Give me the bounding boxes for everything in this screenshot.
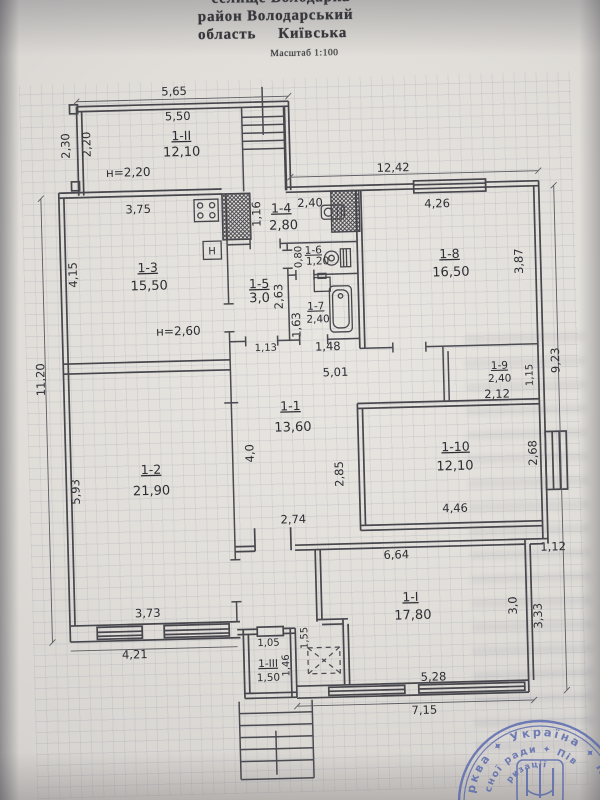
- room-area-1-2: 21,90: [133, 483, 171, 499]
- room-area-1-4: 2,80: [269, 218, 298, 234]
- room-area-1-8: 16,50: [432, 265, 470, 281]
- dim-1-2-door: 2,74: [280, 512, 306, 527]
- room-area-1-III: 1,50: [257, 672, 281, 685]
- dim-1-4-top: 2,40: [297, 195, 323, 210]
- dim-alcove-height: 1,55: [299, 627, 311, 650]
- interior-walls: [219, 186, 545, 622]
- room-label-1-3: 1-3: [137, 260, 158, 276]
- room-label-1-1: 1-1: [280, 398, 301, 414]
- dim-1-III-right: 1,46: [281, 654, 293, 677]
- room-area-1-9: 2,40: [488, 372, 512, 385]
- dim-1-10-window: 2,68: [525, 440, 540, 466]
- dim-1-1-width: 5,01: [323, 365, 349, 380]
- dim-step-right: 1,12: [540, 539, 566, 554]
- dim-1-I-right-outer: 3,33: [531, 603, 546, 629]
- dim-1-1-height: 4,0: [242, 444, 256, 463]
- radiator-letter: Н: [208, 246, 216, 257]
- dim-1-7-width: 1,48: [315, 339, 341, 354]
- dim-left-height: 11,20: [33, 363, 48, 396]
- dim-1-3-height: 4,15: [66, 262, 81, 288]
- dim-1-10-width: 4,46: [442, 501, 468, 516]
- room-label-1-I: 1-I: [402, 589, 419, 604]
- stove-icon: [194, 199, 219, 222]
- bathtub-icon: [329, 286, 352, 333]
- room-label-1-10: 1-10: [441, 439, 470, 455]
- dim-1-9-width: 2,12: [484, 386, 510, 401]
- dim-1-I-right-inner: 3,0: [505, 596, 519, 615]
- dim-1-I-top: 6,64: [383, 547, 409, 562]
- room-area-1-3: 15,50: [130, 278, 168, 294]
- room-area-1-I: 17,80: [394, 608, 432, 624]
- room-label-1-8: 1-8: [439, 246, 460, 262]
- dim-1-2-window-outer: 4,21: [122, 647, 148, 662]
- room-label-1-9: 1-9: [491, 360, 508, 372]
- dim-annex-height-outer: 2,30: [58, 133, 73, 159]
- dim-1-6-height: 0,80: [293, 246, 305, 269]
- dim-top-right-width: 12,42: [377, 160, 410, 175]
- room-area-1-1: 13,60: [274, 420, 312, 436]
- room-label-1-2: 1-2: [141, 462, 162, 478]
- dim-annex-height-inner: 2,20: [79, 132, 94, 158]
- floor-plan-drawing: Н: [0, 0, 600, 800]
- radiator-icon: Н: [203, 241, 221, 259]
- dim-door-1-5: 1,13: [255, 343, 278, 355]
- room-label-1-7: 1-7: [307, 300, 324, 312]
- official-round-stamp: рква ✦ Україна ✦ Ком сної ради ✦ Пів риз…: [459, 721, 600, 800]
- room-label-1-III: 1-III: [258, 658, 278, 671]
- room-area-1-7: 2,40: [306, 313, 330, 326]
- dim-right-height: 9,23: [548, 347, 563, 373]
- dim-1-2-window-inner: 3,73: [135, 606, 161, 621]
- height-note-main: н=2,60: [156, 324, 201, 339]
- room-label-1-II: 1-II: [171, 128, 191, 144]
- dim-1-2-height: 5,93: [68, 479, 83, 505]
- height-note-annex: н=2,20: [106, 165, 151, 180]
- dashed-hatch-opening: [308, 647, 341, 674]
- sink-icon: [314, 273, 330, 291]
- room-area-1-II: 12,10: [163, 145, 201, 161]
- dim-1-8-width: 4,26: [424, 196, 450, 211]
- dim-1-1-inner: 2,85: [332, 461, 347, 487]
- dim-1-4-height: 1,16: [249, 201, 264, 227]
- dim-1-5-height: 2,63: [271, 284, 286, 310]
- dim-1-3-width: 3,75: [125, 202, 151, 217]
- entrance-stairs: [239, 700, 314, 780]
- room-area-1-10: 12,10: [436, 458, 474, 474]
- dim-annex-width-inner: 5,50: [165, 109, 191, 124]
- dim-1-9-height: 1,15: [524, 364, 536, 387]
- dim-1-7-height: 1,63: [289, 312, 304, 338]
- exterior-walls: [56, 93, 552, 704]
- dim-annex-width-outer: 5,65: [161, 84, 187, 99]
- room-label-1-5: 1-5: [249, 276, 270, 292]
- dim-1-I-window-inner: 5,28: [421, 669, 447, 684]
- room-label-1-4: 1-4: [271, 200, 292, 216]
- room-area-1-5: 3,0: [249, 291, 270, 307]
- scanned-floor-plan-page: селище Володарка район Володарський обла…: [0, 0, 600, 800]
- dim-1-III-top: 1,05: [257, 638, 280, 650]
- room-area-1-6: 1,20: [306, 255, 330, 268]
- dim-1-8-height: 3,87: [511, 248, 526, 274]
- dim-1-I-window-outer: 7,15: [411, 703, 437, 718]
